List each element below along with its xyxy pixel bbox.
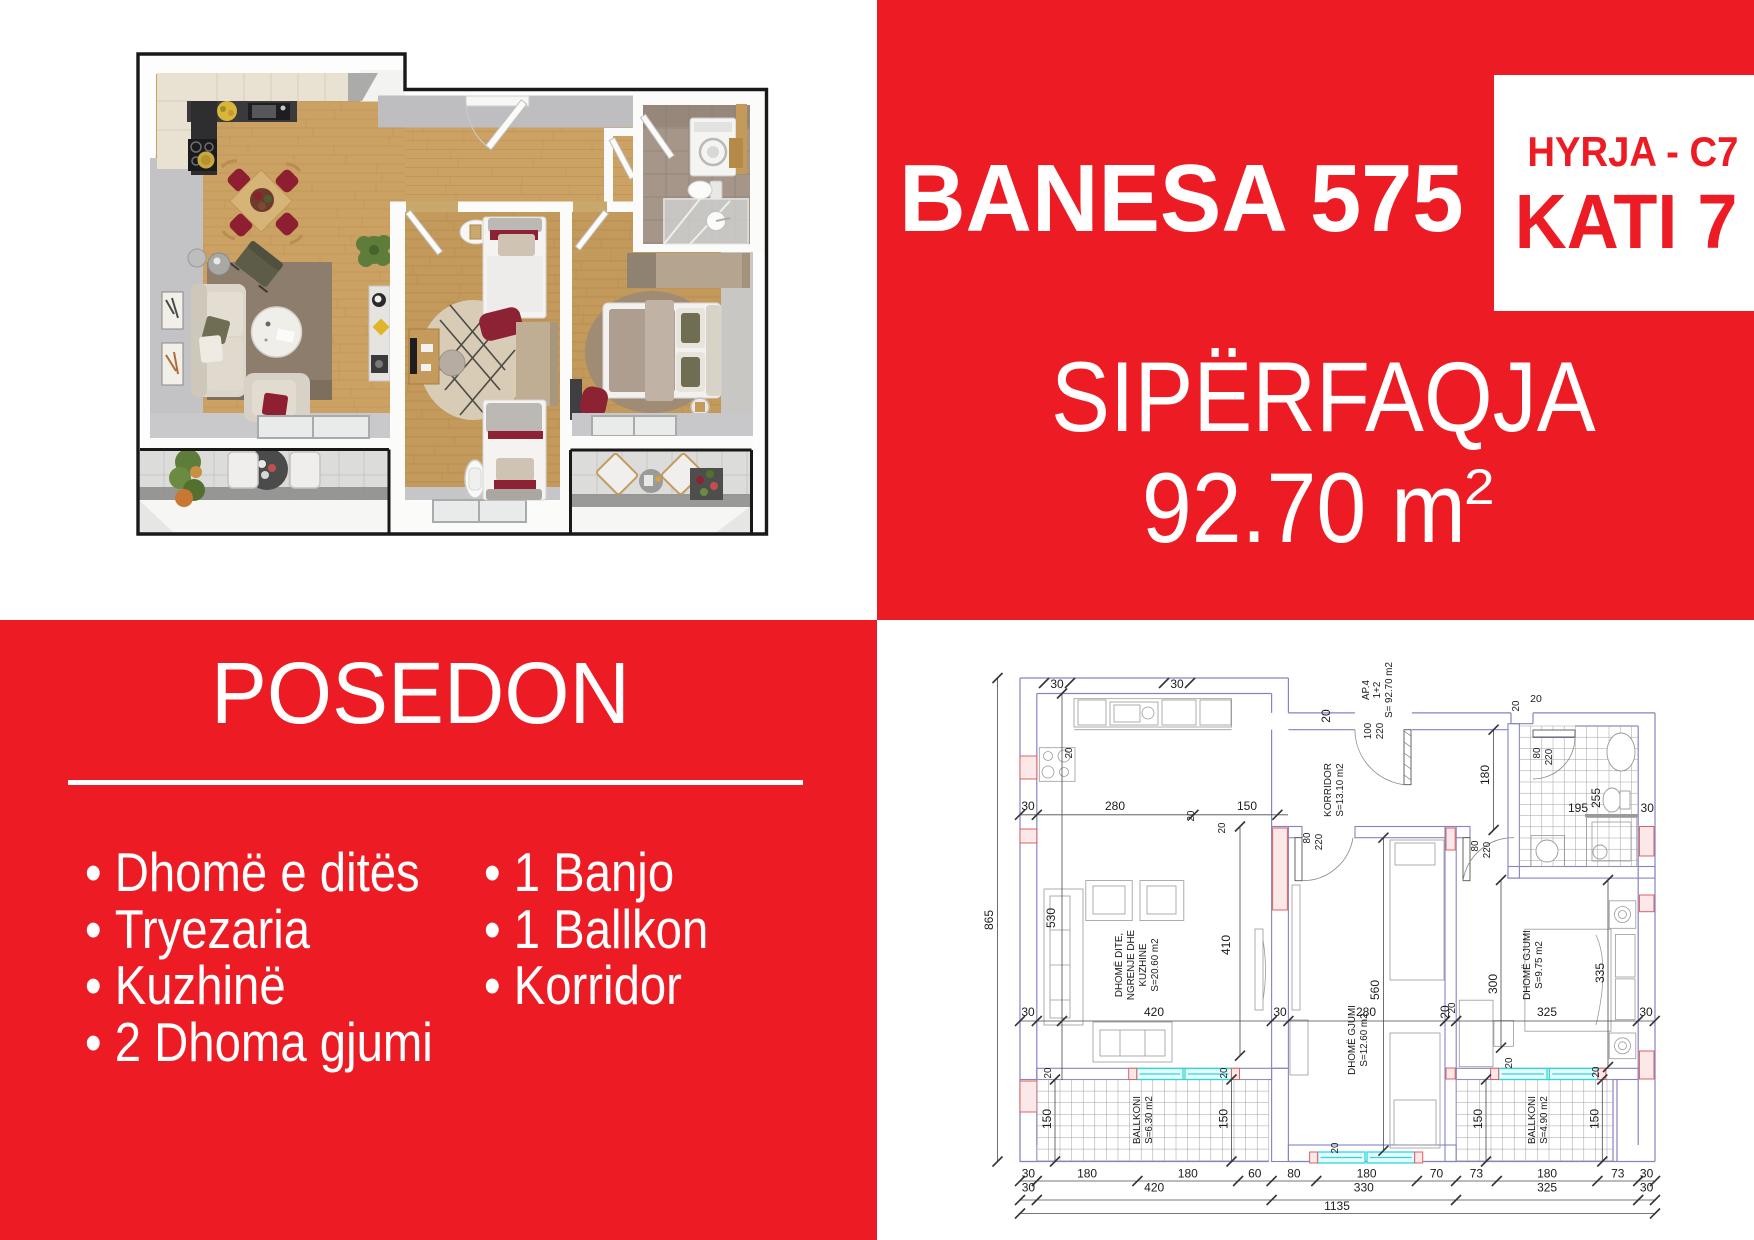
- svg-text:180: 180: [1178, 1167, 1198, 1181]
- svg-text:150: 150: [1471, 1109, 1485, 1129]
- svg-text:DHOMË GJUMI: DHOMË GJUMI: [1347, 1005, 1358, 1075]
- svg-text:1+2: 1+2: [1372, 682, 1383, 699]
- svg-text:20: 20: [1330, 1142, 1341, 1153]
- svg-text:30: 30: [1639, 1005, 1653, 1019]
- svg-text:180: 180: [1357, 1167, 1377, 1181]
- svg-text:30: 30: [1641, 801, 1655, 815]
- svg-text:325: 325: [1537, 1005, 1557, 1019]
- svg-text:150: 150: [1040, 1109, 1054, 1129]
- svg-text:420: 420: [1144, 1181, 1164, 1195]
- svg-text:150: 150: [1217, 1109, 1231, 1129]
- svg-text:150: 150: [1587, 1109, 1601, 1129]
- svg-text:20: 20: [1530, 693, 1542, 705]
- svg-text:30: 30: [1021, 1005, 1035, 1019]
- svg-text:AP.4: AP.4: [1361, 679, 1372, 700]
- svg-text:30: 30: [1170, 677, 1184, 691]
- svg-text:20: 20: [1219, 1067, 1230, 1078]
- svg-text:30: 30: [1022, 1181, 1036, 1195]
- svg-text:S=13.10 m2: S=13.10 m2: [1335, 763, 1346, 816]
- svg-text:80: 80: [1302, 832, 1313, 843]
- svg-text:865: 865: [982, 910, 996, 930]
- svg-text:180: 180: [1537, 1167, 1557, 1181]
- svg-text:1135: 1135: [1324, 1199, 1350, 1213]
- svg-text:20: 20: [1043, 1067, 1054, 1078]
- svg-text:20: 20: [1319, 709, 1333, 723]
- svg-text:S=20.60 m2: S=20.60 m2: [1150, 938, 1161, 991]
- svg-text:195: 195: [1568, 801, 1588, 815]
- svg-text:30: 30: [1022, 1167, 1036, 1181]
- svg-text:180: 180: [1077, 1167, 1097, 1181]
- svg-text:220: 220: [1375, 722, 1386, 739]
- svg-text:S=9.75 m2: S=9.75 m2: [1534, 941, 1545, 989]
- svg-text:70: 70: [1430, 1167, 1444, 1181]
- svg-text:300: 300: [1486, 974, 1500, 994]
- svg-text:20: 20: [1511, 700, 1522, 711]
- svg-text:80: 80: [1470, 840, 1481, 851]
- svg-text:80: 80: [1287, 1167, 1301, 1181]
- svg-text:S=6.30 m2: S=6.30 m2: [1144, 1096, 1155, 1144]
- svg-text:330: 330: [1354, 1181, 1374, 1195]
- svg-text:420: 420: [1144, 1005, 1164, 1019]
- svg-text:325: 325: [1537, 1181, 1557, 1195]
- svg-text:560: 560: [1368, 980, 1382, 1000]
- svg-text:220: 220: [1314, 833, 1325, 850]
- svg-text:20: 20: [1186, 810, 1197, 821]
- svg-text:30: 30: [1050, 677, 1064, 691]
- svg-text:20: 20: [1447, 1002, 1458, 1013]
- svg-text:410: 410: [1219, 935, 1233, 955]
- svg-text:280: 280: [1105, 799, 1125, 813]
- svg-text:73: 73: [1611, 1167, 1625, 1181]
- svg-text:30: 30: [1273, 1005, 1287, 1019]
- svg-text:DHOMË GJUMI: DHOMË GJUMI: [1522, 930, 1533, 1000]
- svg-text:30: 30: [1640, 1181, 1654, 1195]
- svg-text:BALLKONI: BALLKONI: [1527, 1096, 1538, 1144]
- svg-text:73: 73: [1470, 1167, 1484, 1181]
- svg-text:150: 150: [1237, 799, 1257, 813]
- svg-text:KUZHINE: KUZHINE: [1138, 943, 1149, 986]
- svg-text:100: 100: [1363, 722, 1374, 739]
- svg-text:220: 220: [1482, 841, 1493, 858]
- svg-text:80: 80: [1532, 747, 1543, 758]
- svg-text:S=4.90 m2: S=4.90 m2: [1539, 1096, 1550, 1144]
- svg-text:255: 255: [1589, 788, 1603, 808]
- svg-text:DHOMË DITE,: DHOMË DITE,: [1114, 933, 1125, 997]
- svg-text:KORRIDOR: KORRIDOR: [1323, 763, 1334, 817]
- svg-text:20: 20: [1504, 1057, 1515, 1068]
- svg-text:335: 335: [1593, 963, 1607, 983]
- svg-text:30: 30: [1640, 1167, 1654, 1181]
- svg-text:BALLKONI: BALLKONI: [1132, 1096, 1143, 1144]
- svg-text:S= 92.70 m2: S= 92.70 m2: [1384, 662, 1395, 718]
- svg-text:20: 20: [1064, 747, 1075, 758]
- svg-text:NGRENJE DHE: NGRENJE DHE: [1126, 929, 1137, 1000]
- svg-text:S=12.60 m2: S=12.60 m2: [1359, 1013, 1370, 1066]
- svg-text:180: 180: [1478, 765, 1492, 785]
- svg-text:60: 60: [1248, 1167, 1262, 1181]
- svg-text:220: 220: [1544, 748, 1555, 765]
- svg-text:30: 30: [1021, 799, 1035, 813]
- svg-text:20: 20: [1591, 1066, 1602, 1077]
- svg-text:20: 20: [1217, 822, 1228, 833]
- svg-text:530: 530: [1044, 908, 1058, 928]
